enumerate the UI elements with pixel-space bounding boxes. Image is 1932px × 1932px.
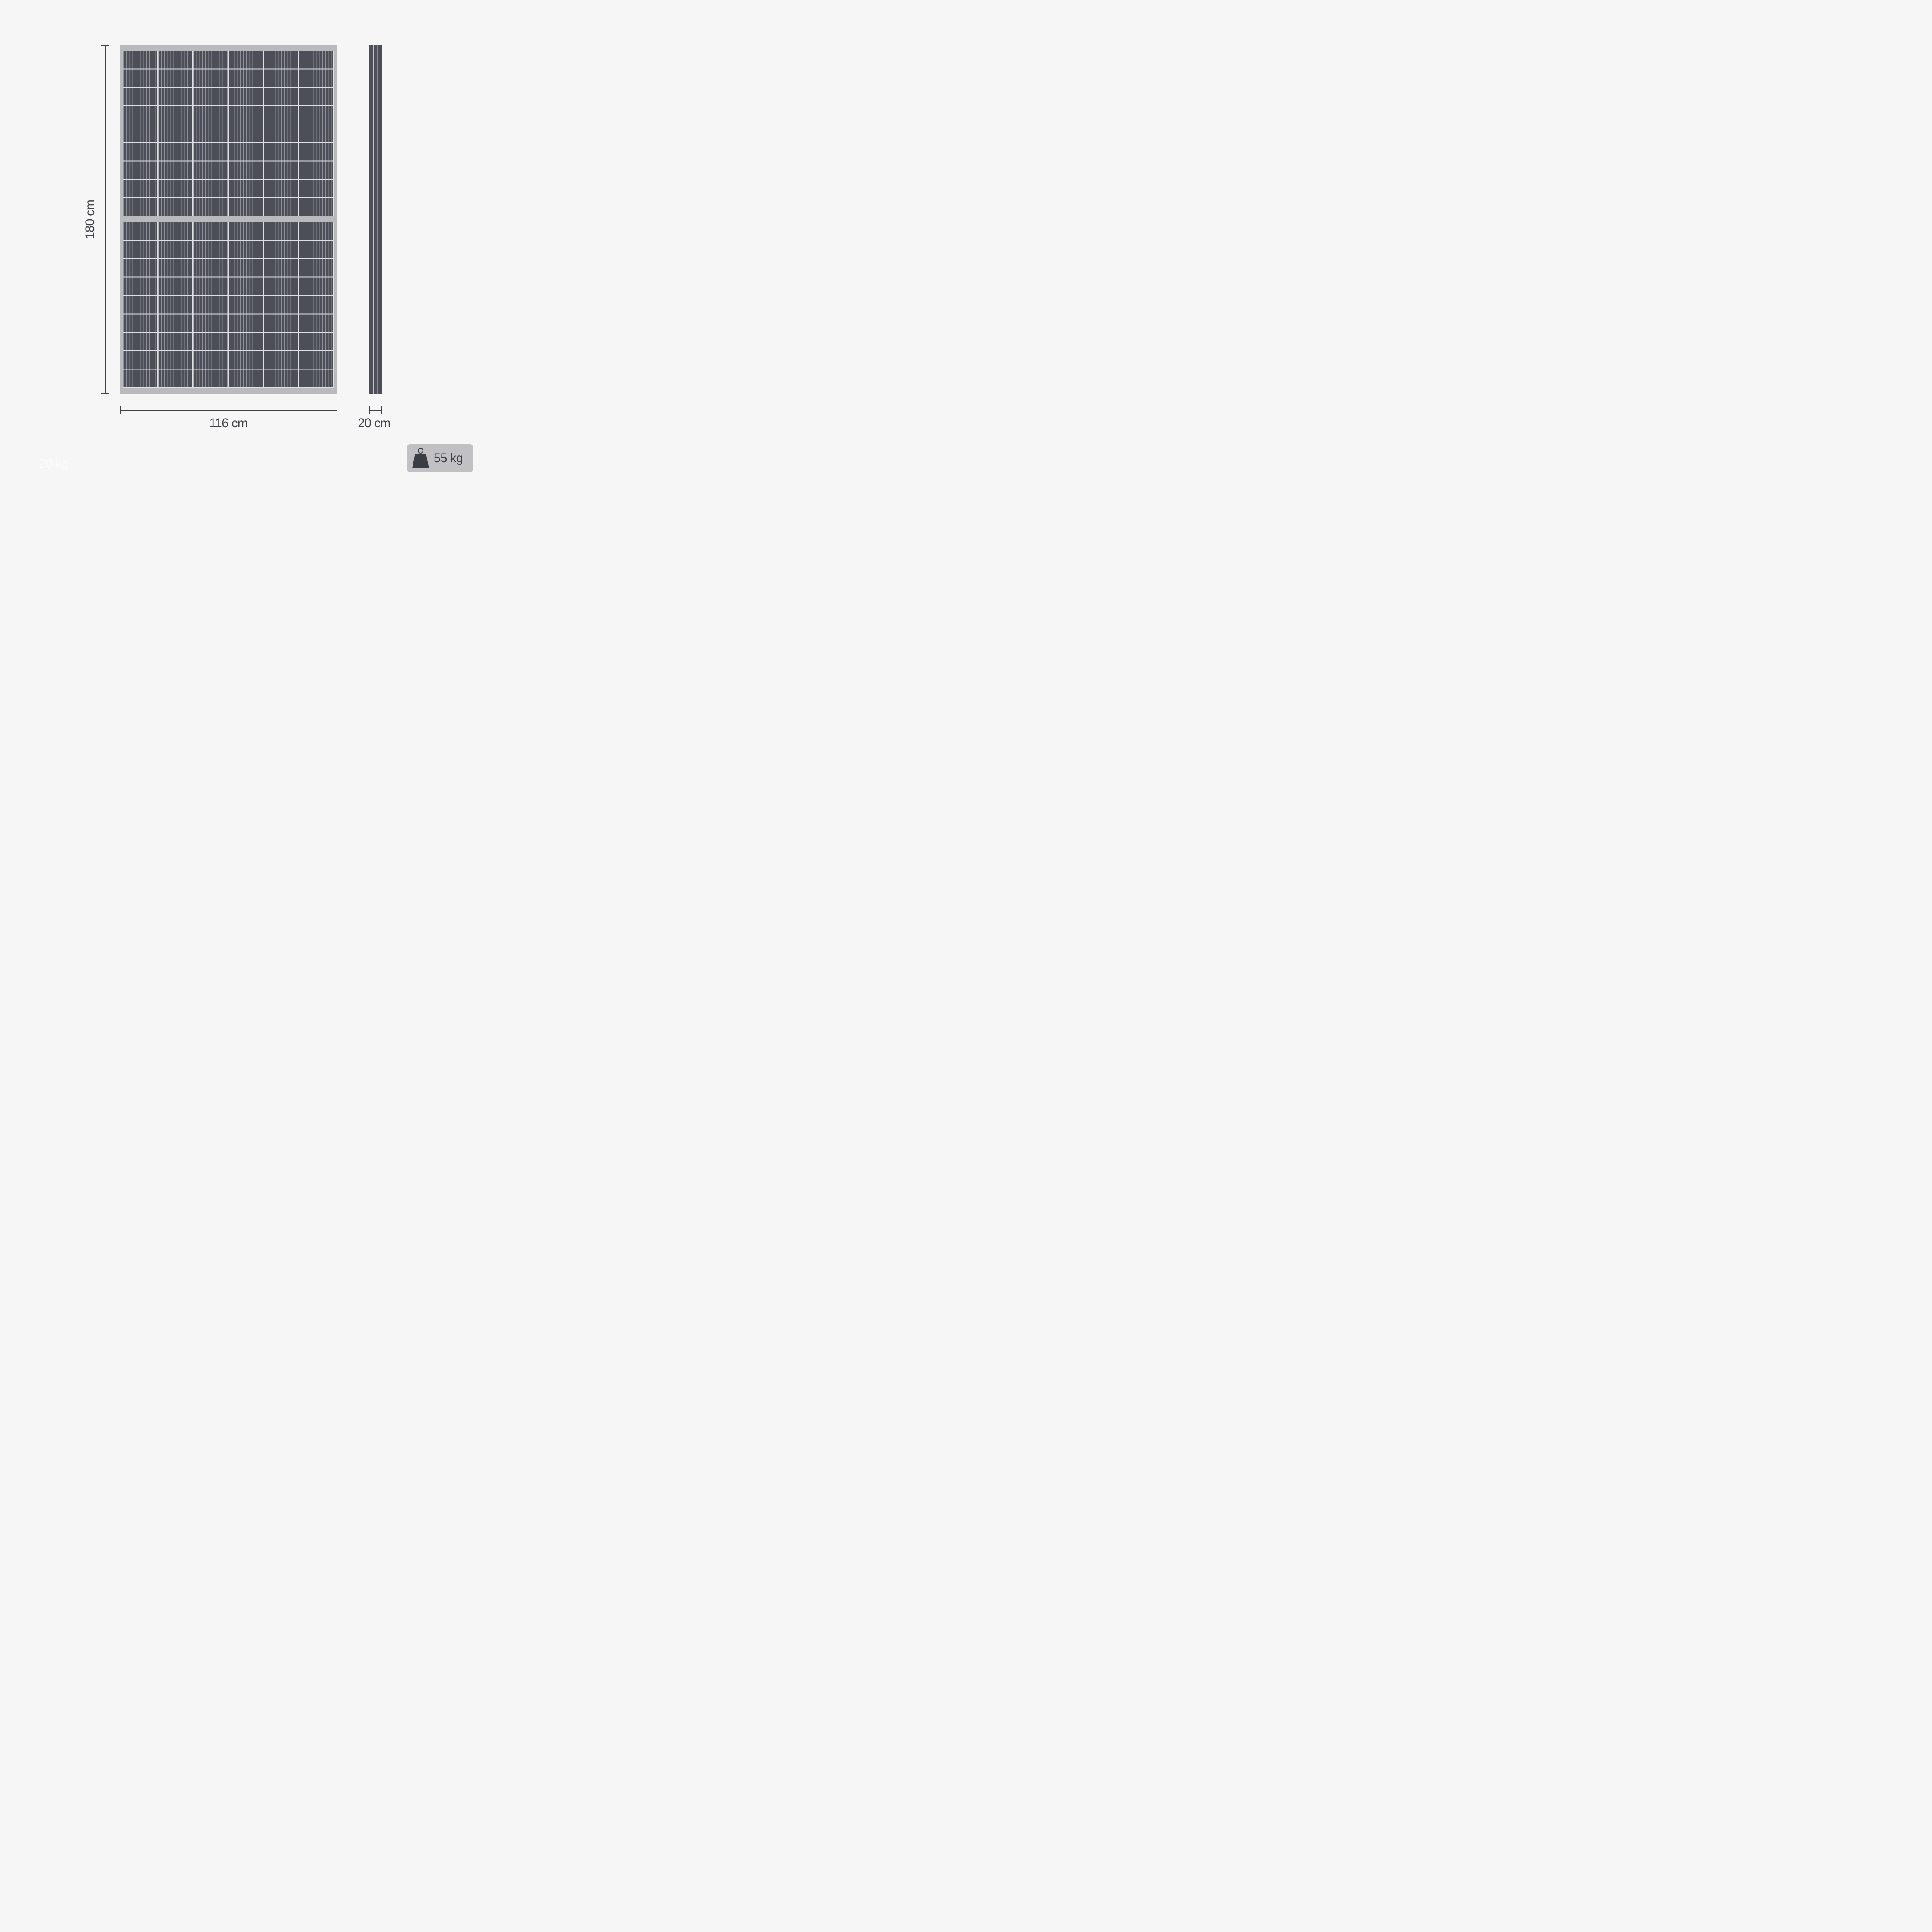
- depth-dimension-cap-left: [369, 406, 370, 414]
- width-dimension-cap-left: [120, 406, 121, 414]
- panel-cells-top-half: [123, 51, 334, 216]
- height-dimension-label: 180 cm: [83, 200, 98, 239]
- ghost-weight-label: 20 kg: [39, 456, 68, 472]
- weight-icon-handle: [418, 448, 423, 454]
- weight-icon-body: [412, 454, 429, 469]
- depth-dimension-line: [369, 410, 382, 411]
- width-dimension-cap-right: [337, 406, 338, 414]
- panel-mid-divider: [123, 216, 334, 222]
- height-dimension-cap-top: [101, 45, 109, 46]
- diagram-canvas: 180 cm 116 cm 20 cm 20 kg 55 kg: [0, 0, 483, 483]
- width-dimension-line: [120, 410, 337, 411]
- solar-panel-side-view: [369, 45, 382, 394]
- weight-badge-label: 55 kg: [434, 451, 463, 466]
- width-dimension-label: 116 cm: [210, 416, 248, 431]
- height-dimension-line: [105, 45, 106, 394]
- height-dimension-cap-bottom: [101, 393, 109, 394]
- weight-badge: 55 kg: [407, 444, 473, 472]
- weight-icon: [412, 448, 429, 468]
- panel-cells-bottom-half: [123, 222, 334, 388]
- depth-dimension-label: 20 cm: [358, 416, 390, 431]
- depth-dimension-cap-right: [381, 406, 383, 414]
- solar-panel-front-view: [120, 45, 337, 394]
